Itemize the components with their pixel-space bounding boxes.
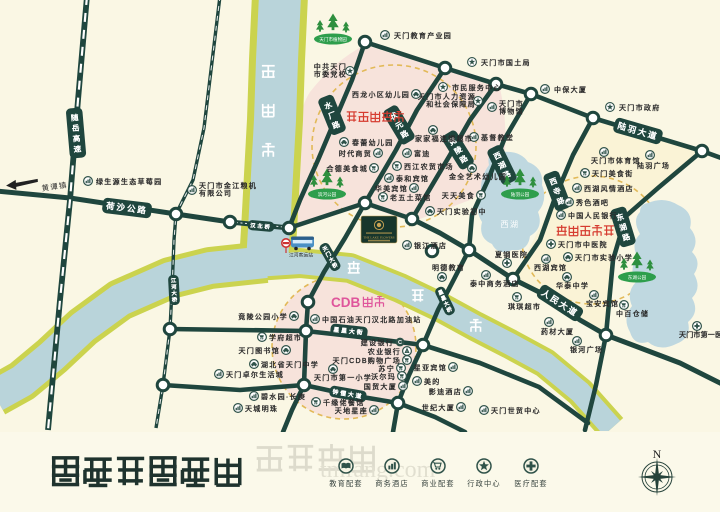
- svg-text:国贸大厦: 国贸大厦: [364, 382, 397, 391]
- svg-text:中国石油天门汉北路加油站: 中国石油天门汉北路加油站: [322, 315, 422, 324]
- svg-text:天门市植物园: 天门市植物园: [319, 36, 347, 43]
- svg-text:陆羽广场: 陆羽广场: [637, 161, 670, 170]
- svg-text:星亚宾馆: 星亚宾馆: [414, 363, 447, 372]
- svg-text:天天美食: 天天美食: [442, 191, 475, 200]
- svg-text:CDB: CDB: [331, 295, 360, 310]
- svg-text:华美宾馆: 华美宾馆: [375, 184, 408, 193]
- svg-text:富迪: 富迪: [414, 149, 431, 158]
- svg-text:西江农贸市场: 西江农贸市场: [404, 162, 454, 171]
- svg-text:千缘佬餐馆: 千缘佬餐馆: [323, 398, 365, 407]
- svg-text:银河广场: 银河广场: [570, 345, 603, 354]
- svg-text:天门市中医院: 天门市中医院: [558, 240, 608, 249]
- svg-text:天门市国土局: 天门市国土局: [481, 58, 531, 67]
- svg-text:琪琪超市: 琪琪超市: [508, 302, 541, 311]
- svg-text:建设银行: 建设银行: [361, 338, 394, 347]
- svg-text:医疗配套: 医疗配套: [514, 479, 548, 488]
- svg-text:速: 速: [73, 144, 82, 154]
- svg-text:秀色酒吧: 秀色酒吧: [576, 198, 609, 207]
- svg-text:美的: 美的: [424, 377, 441, 386]
- svg-text:N: N: [653, 447, 662, 461]
- svg-text:天门图书馆: 天门图书馆: [239, 346, 281, 355]
- svg-text:江河客运站: 江河客运站: [289, 252, 313, 259]
- svg-text:岳: 岳: [71, 122, 80, 133]
- svg-text:中保大厦: 中保大厦: [554, 85, 587, 94]
- svg-text:中共天门: 中共天门: [314, 62, 347, 71]
- svg-text:东湖公园: 东湖公园: [628, 274, 647, 281]
- svg-text:陆羽公园: 陆羽公园: [511, 191, 530, 198]
- svg-text:天地星座: 天地星座: [335, 406, 368, 415]
- svg-text:天门世贸中心: 天门世贸中心: [491, 406, 541, 415]
- svg-text:市民服务中心: 市民服务中心: [452, 83, 502, 92]
- svg-text:基督教堂: 基督教堂: [481, 133, 514, 142]
- svg-text:绿生源生态草莓园: 绿生源生态草莓园: [96, 177, 162, 186]
- svg-text:宝安宾馆: 宝安宾馆: [586, 299, 619, 308]
- svg-text:C: C: [398, 340, 402, 346]
- svg-text:有限公司: 有限公司: [199, 189, 232, 198]
- svg-text:教育配套: 教育配套: [329, 479, 363, 488]
- svg-text:西龙小区幼儿园: 西龙小区幼儿园: [352, 90, 410, 99]
- svg-text:天门卓尔生活城: 天门卓尔生活城: [226, 370, 284, 379]
- svg-text:天门市金江粮机: 天门市金江粮机: [199, 181, 257, 190]
- svg-text:碧水园·长庚: 碧水园·长庚: [261, 392, 306, 401]
- svg-text:商务酒店: 商务酒店: [375, 479, 409, 488]
- svg-text:湖北省天门中学: 湖北省天门中学: [261, 360, 319, 369]
- svg-text:行政中心: 行政中心: [467, 479, 501, 488]
- svg-text:华泰中学: 华泰中学: [556, 281, 589, 290]
- svg-text:竟陵公园小学: 竟陵公园小学: [238, 312, 288, 321]
- svg-text:世纪大厦: 世纪大厦: [422, 403, 455, 412]
- svg-text:春蕾幼儿园: 春蕾幼儿园: [352, 138, 394, 147]
- svg-text:天城明珠: 天城明珠: [245, 404, 278, 413]
- svg-text:市委党校: 市委党校: [314, 70, 347, 79]
- svg-text:合德美食城: 合德美食城: [327, 164, 369, 173]
- svg-text:明德教育: 明德教育: [432, 263, 465, 272]
- svg-text:天门美食街: 天门美食街: [592, 169, 634, 178]
- svg-text:苏宁: 苏宁: [378, 364, 395, 373]
- svg-text:天门市第一小学: 天门市第一小学: [314, 373, 372, 382]
- svg-text:天门市人力资源: 天门市人力资源: [418, 92, 476, 101]
- svg-text:沃尔玛: 沃尔玛: [371, 372, 396, 381]
- svg-text:天门市: 天门市: [499, 99, 524, 108]
- svg-text:药材大厦: 药材大厦: [541, 327, 574, 336]
- svg-text:天门市实验小学: 天门市实验小学: [575, 253, 633, 262]
- svg-text:商业配套: 商业配套: [421, 479, 455, 488]
- svg-text:天门教育产业园: 天门教育产业园: [394, 31, 452, 40]
- svg-text:天门CDB购物广场: 天门CDB购物广场: [333, 356, 401, 365]
- svg-text:影迪酒店: 影迪酒店: [429, 387, 462, 396]
- svg-text:时代商贸: 时代商贸: [339, 149, 372, 158]
- svg-text:THE LAKE FLOWERS: THE LAKE FLOWERS: [363, 236, 394, 240]
- svg-text:学府超市: 学府超市: [269, 333, 302, 342]
- svg-text:中国人民银行: 中国人民银行: [568, 211, 618, 220]
- svg-text:天门市第一医院: 天门市第一医院: [679, 330, 720, 339]
- svg-text:高: 高: [72, 133, 81, 144]
- svg-text:随: 随: [70, 112, 79, 123]
- svg-text:泰和宾馆: 泰和宾馆: [396, 174, 429, 183]
- svg-text:博物馆: 博物馆: [499, 107, 524, 116]
- svg-text:银江酒店: 银江酒店: [414, 241, 447, 250]
- svg-text:西湖宾馆: 西湖宾馆: [534, 263, 567, 272]
- svg-text:夏钢医院: 夏钢医院: [495, 250, 528, 259]
- svg-text:西湖风情酒店: 西湖风情酒店: [584, 184, 634, 193]
- svg-text:泰中商务酒店: 泰中商务酒店: [470, 279, 520, 288]
- svg-text:天门市体育馆: 天门市体育馆: [591, 156, 641, 165]
- svg-text:西湖: 西湖: [501, 220, 520, 229]
- svg-text:河: 河: [171, 282, 177, 290]
- svg-text:农业银行: 农业银行: [368, 347, 401, 356]
- svg-text:老五土菜馆: 老五土菜馆: [390, 193, 432, 202]
- svg-text:天门市政府: 天门市政府: [619, 103, 661, 112]
- svg-text:中百仓储: 中百仓储: [616, 309, 649, 318]
- svg-text:和社会保障局: 和社会保障局: [426, 100, 476, 109]
- svg-text:天门实验初中: 天门实验初中: [437, 207, 487, 216]
- svg-text:金全艺术幼儿园: 金全艺术幼儿园: [449, 172, 507, 181]
- svg-text:滨河公园: 滨河公园: [318, 191, 337, 198]
- svg-text:家家福连锁超市: 家家福连锁超市: [415, 134, 473, 143]
- svg-text:江: 江: [171, 277, 177, 284]
